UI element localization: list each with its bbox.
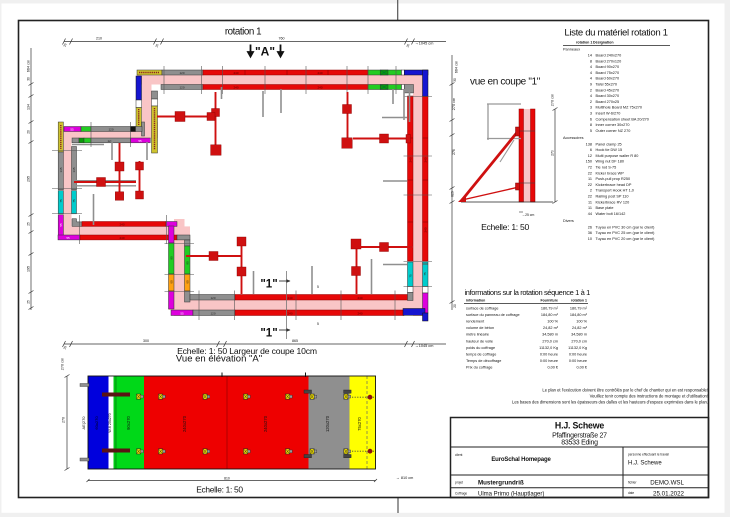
svg-text:H.J. Schewe: H.J. Schewe [555, 421, 604, 431]
svg-text:projet: projet [455, 481, 463, 485]
svg-text:Railing post SP 110: Railing post SP 110 [596, 195, 629, 199]
svg-text:300: 300 [143, 339, 149, 343]
svg-text:Board 90x270: Board 90x270 [596, 65, 620, 69]
svg-text:surface du panneau de coffrage: surface du panneau de coffrage [466, 313, 520, 317]
svg-text:100 %: 100 % [576, 320, 587, 324]
svg-text:H.J. Schewe: H.J. Schewe [628, 461, 662, 467]
svg-text:24,82 m³: 24,82 m³ [572, 326, 588, 330]
svg-text:Compensation sheet BA 20/270: Compensation sheet BA 20/270 [596, 117, 649, 121]
svg-text:Panneaux: Panneaux [563, 48, 580, 52]
svg-text:AE|270: AE|270 [81, 416, 86, 430]
svg-text:5: 5 [317, 285, 319, 289]
svg-text:Les bases des dimensions sont: Les bases des dimensions sont les épaiss… [512, 400, 708, 405]
svg-text:W-6 20x270: W-6 20x270 [108, 413, 112, 432]
svg-text:134: 134 [27, 104, 31, 110]
svg-text:270: 270 [551, 150, 555, 156]
svg-text:26: 26 [588, 225, 592, 229]
svg-text:"A": "A" [255, 45, 275, 59]
svg-text:0:00 heure: 0:00 heure [569, 359, 587, 363]
svg-text:195: 195 [27, 266, 31, 272]
svg-text:mètre linéaire: mètre linéaire [466, 333, 489, 337]
svg-text:3: 3 [590, 112, 592, 116]
svg-text:2: 2 [590, 189, 592, 193]
svg-text:6: 6 [590, 148, 592, 152]
svg-text:→1045 cm: →1045 cm [415, 42, 433, 46]
svg-text:Echelle: 1: 50: Echelle: 1: 50 [481, 222, 529, 232]
svg-text:Panel clamp 25: Panel clamp 25 [596, 142, 622, 146]
svg-text:0,00 €: 0,00 € [576, 366, 587, 370]
svg-text:240: 240 [317, 71, 322, 75]
svg-text:poids du coffrage: poids du coffrage [466, 346, 495, 350]
svg-text:fichier: fichier [628, 481, 637, 485]
svg-text:240: 240 [119, 236, 124, 240]
svg-text:240: 240 [287, 312, 292, 316]
svg-text:Pfaffingerstraße 27: Pfaffingerstraße 27 [552, 433, 607, 440]
svg-text:120: 120 [179, 86, 184, 90]
svg-text:25: 25 [27, 222, 31, 226]
svg-text:240x270: 240x270 [263, 415, 268, 432]
svg-text:90: 90 [169, 256, 173, 260]
svg-text:Vue en élévation "A": Vue en élévation "A" [176, 354, 262, 365]
svg-text:Tie rod S-75: Tie rod S-75 [596, 166, 617, 170]
svg-text:120: 120 [210, 296, 215, 300]
svg-text:0,00 €: 0,00 € [547, 366, 558, 370]
svg-text:rotation 1: rotation 1 [571, 299, 587, 303]
svg-text:Board 240x270: Board 240x270 [596, 54, 622, 58]
svg-text:information: information [466, 299, 485, 303]
svg-text:Echelle: 1: 50: Echelle: 1: 50 [196, 485, 243, 495]
svg-text:hauteur de voile: hauteur de voile [466, 339, 493, 343]
svg-text:rotation 1: rotation 1 [225, 27, 261, 38]
svg-text:240: 240 [287, 296, 292, 300]
svg-text:270 cm: 270 cm [452, 98, 456, 110]
svg-text:6: 6 [590, 117, 592, 121]
svg-text:Board 270x25: Board 270x25 [596, 100, 620, 104]
svg-text:55: 55 [70, 128, 74, 132]
svg-text:Ulma Primo (Hauptlager): Ulma Primo (Hauptlager) [478, 492, 544, 498]
svg-text:14: 14 [588, 54, 592, 58]
svg-text:20: 20 [27, 130, 31, 134]
svg-text:surface de coffrage: surface de coffrage [466, 307, 498, 311]
svg-text:0:00 heure: 0:00 heure [540, 359, 558, 363]
svg-text:Accessoires: Accessoires [563, 136, 584, 140]
svg-text:240: 240 [233, 71, 238, 75]
svg-text:0:00 heure: 0:00 heure [569, 352, 587, 356]
svg-text:2: 2 [590, 100, 592, 104]
svg-text:55: 55 [138, 139, 142, 143]
svg-text:240: 240 [423, 227, 427, 232]
svg-text:270,0 cm: 270,0 cm [542, 339, 558, 343]
svg-text:Board 270x120: Board 270x120 [596, 59, 622, 63]
svg-text:"1": "1" [260, 279, 277, 291]
svg-text:11: 11 [588, 177, 592, 181]
svg-text:Divers: Divers [563, 219, 574, 223]
svg-text:Push-pull prop R250: Push-pull prop R250 [596, 177, 631, 181]
svg-text:8: 8 [590, 123, 592, 127]
svg-text:Le plan et l'exécution doivent: Le plan et l'exécution doivent être cont… [542, 388, 708, 393]
svg-text:Veuillez tenir compte des inst: Veuillez tenir compte des instructions d… [590, 394, 708, 399]
svg-text:20: 20 [453, 304, 457, 308]
svg-text:90x270: 90x270 [126, 415, 131, 429]
svg-text:Fourniture: Fourniture [541, 299, 559, 303]
svg-text:22: 22 [588, 195, 592, 199]
svg-text:9: 9 [590, 83, 592, 87]
svg-text:44: 44 [588, 212, 592, 216]
svg-text:2: 2 [590, 88, 592, 92]
svg-text:11: 11 [588, 200, 592, 204]
svg-text:120: 120 [108, 128, 113, 132]
svg-text:810: 810 [224, 477, 230, 481]
svg-text:Outer corner NZ 270: Outer corner NZ 270 [596, 129, 631, 133]
svg-text:Transport Hook HT 1,0: Transport Hook HT 1,0 [596, 189, 634, 193]
svg-text:Coffrage: Coffrage [455, 492, 467, 496]
svg-text:Wing nut DF 180: Wing nut DF 180 [596, 160, 625, 164]
svg-text:75: 75 [408, 274, 412, 278]
svg-text:date: date [628, 491, 634, 495]
svg-text:240: 240 [233, 86, 238, 90]
svg-text:client: client [455, 453, 463, 457]
svg-text:629: 629 [451, 191, 455, 197]
svg-text:Base plate: Base plate [596, 206, 614, 210]
svg-text:240: 240 [119, 223, 124, 227]
svg-text:24,82 m³: 24,82 m³ [543, 326, 559, 330]
svg-text:240: 240 [408, 157, 412, 162]
svg-text:Board 60x270: Board 60x270 [596, 77, 620, 81]
svg-text:184,80 m²: 184,80 m² [541, 313, 559, 317]
svg-text:Multihole Board MZ 75x270: Multihole Board MZ 75x270 [596, 106, 642, 110]
svg-text:664 cm: 664 cm [455, 61, 459, 73]
svg-text:270: 270 [62, 417, 66, 423]
svg-text:0:00 heure: 0:00 heure [540, 352, 558, 356]
svg-text:vue en coupe "1": vue en coupe "1" [470, 77, 541, 88]
svg-text:Inner corner 30x270: Inner corner 30x270 [596, 123, 630, 127]
svg-text:4: 4 [590, 94, 592, 98]
svg-text:30: 30 [27, 77, 31, 81]
svg-text:11132,0 Kg: 11132,0 Kg [539, 346, 558, 350]
svg-text:→25 cm: →25 cm [522, 213, 535, 217]
svg-text:rendement: rendement [466, 320, 485, 324]
svg-text:138: 138 [586, 142, 592, 146]
svg-text:60: 60 [185, 280, 189, 284]
svg-text:Temps de décoffrage: Temps de décoffrage [466, 359, 501, 363]
svg-text:120: 120 [179, 71, 184, 75]
svg-text:83533 Eding: 83533 Eding [561, 440, 598, 447]
svg-text:Prix du coffrage: Prix du coffrage [466, 366, 493, 370]
svg-text:5: 5 [590, 129, 592, 133]
svg-text:Multi purpose waller R 80: Multi purpose waller R 80 [596, 154, 639, 158]
svg-text:34,580 m: 34,580 m [571, 333, 587, 337]
svg-text:10: 10 [588, 237, 592, 241]
svg-text:personne effectuant le travail: personne effectuant le travail [628, 453, 669, 457]
svg-text:"1": "1" [260, 328, 277, 340]
svg-text:120: 120 [210, 312, 215, 316]
svg-text:60x270: 60x270 [94, 416, 99, 430]
svg-text:temps de coffrage: temps de coffrage [466, 352, 496, 356]
svg-text:60: 60 [169, 280, 173, 284]
svg-text:25: 25 [27, 300, 31, 304]
svg-text:Board 30x270: Board 30x270 [596, 94, 620, 98]
svg-text:240: 240 [357, 296, 362, 300]
svg-text:276: 276 [452, 149, 456, 155]
svg-text:150: 150 [586, 160, 592, 164]
svg-text:11132,0 Kg: 11132,0 Kg [568, 346, 587, 350]
svg-text:180,79 m²: 180,79 m² [541, 307, 559, 311]
svg-text:100 %: 100 % [547, 320, 558, 324]
svg-text:Kickerbrace RV 120: Kickerbrace RV 120 [596, 200, 630, 204]
svg-text:270,0 cm: 270,0 cm [571, 339, 587, 343]
svg-text:240x270: 240x270 [182, 415, 187, 432]
svg-text:180,79 m²: 180,79 m² [570, 307, 588, 311]
svg-text:135: 135 [72, 167, 76, 172]
svg-text:Mustergrundriß: Mustergrundriß [478, 480, 524, 487]
svg-text:rotation 1: rotation 1 [576, 41, 592, 45]
svg-text:30: 30 [453, 78, 457, 82]
svg-text:Board 45x270: Board 45x270 [596, 88, 620, 92]
svg-text:120x270: 120x270 [325, 415, 330, 432]
svg-text:240: 240 [317, 86, 322, 90]
svg-text:295: 295 [27, 176, 31, 182]
svg-text:4: 4 [590, 71, 592, 75]
svg-text:5: 5 [317, 322, 319, 326]
svg-text:Kickerbrace head DP: Kickerbrace head DP [596, 183, 632, 187]
svg-text:Insert W-6/270: Insert W-6/270 [596, 112, 621, 116]
svg-text:11: 11 [588, 206, 592, 210]
svg-text:270 cm: 270 cm [551, 94, 555, 106]
svg-text:Board 75x270: Board 75x270 [596, 71, 620, 75]
svg-text:55: 55 [59, 223, 63, 227]
svg-text:184,80 m²: 184,80 m² [570, 313, 588, 317]
svg-text:volume de béton: volume de béton [466, 326, 494, 330]
svg-text:75: 75 [72, 199, 76, 203]
svg-text:→ 810 cm: → 810 cm [396, 476, 413, 480]
svg-text:25.01.2022: 25.01.2022 [653, 491, 685, 498]
svg-text:270 cm: 270 cm [61, 358, 65, 370]
svg-text:Tuyau en PVC 30 cm (par le cli: Tuyau en PVC 30 cm (par le client) [596, 225, 656, 229]
svg-text:Liste du matériel rotation 1: Liste du matériel rotation 1 [564, 28, 667, 39]
svg-text:135: 135 [59, 167, 63, 172]
svg-text:36: 36 [588, 231, 592, 235]
svg-text:34,580 m: 34,580 m [542, 333, 558, 337]
svg-text:72: 72 [588, 166, 592, 170]
svg-text:55: 55 [66, 236, 70, 240]
svg-text:760: 760 [279, 37, 285, 41]
svg-text:8: 8 [590, 59, 592, 63]
svg-text:75: 75 [423, 272, 427, 276]
svg-text:75x270: 75x270 [357, 416, 362, 430]
svg-text:865: 865 [292, 339, 298, 343]
svg-text:Tuyau en PVC 20 cm (par le cli: Tuyau en PVC 20 cm (par le client) [596, 237, 656, 241]
svg-text:informations sur la rotation: informations sur la rotation séquence 1 … [465, 288, 591, 297]
svg-text:75: 75 [59, 199, 63, 203]
svg-text:Hook tie DW 15: Hook tie DW 15 [596, 148, 623, 152]
svg-text:22: 22 [588, 183, 592, 187]
svg-text:55: 55 [180, 312, 184, 316]
svg-text:DEMO.WSL: DEMO.WSL [650, 480, 684, 487]
svg-text:EuroSchal Homepage: EuroSchal Homepage [491, 457, 551, 463]
svg-text:4: 4 [590, 77, 592, 81]
svg-text:Tafel 55x270: Tafel 55x270 [596, 83, 618, 87]
svg-text:3: 3 [590, 106, 592, 110]
svg-text:12: 12 [588, 154, 592, 158]
svg-text:Tuyau en PVC 25 cm (par le cli: Tuyau en PVC 25 cm (par le client) [596, 231, 656, 235]
svg-text:90: 90 [185, 261, 189, 265]
svg-text:240: 240 [423, 157, 427, 162]
svg-text:Water bolt 16/142: Water bolt 16/142 [596, 212, 626, 216]
svg-text:Kicker brace WP: Kicker brace WP [596, 171, 625, 175]
svg-text:240: 240 [357, 312, 362, 316]
svg-text:4: 4 [590, 65, 592, 69]
svg-text:Désignation: Désignation [593, 41, 614, 45]
svg-text:664 cm: 664 cm [27, 60, 31, 72]
svg-text:22: 22 [588, 171, 592, 175]
svg-text:210: 210 [96, 37, 102, 41]
svg-text:→1045 cm: →1045 cm [415, 344, 433, 348]
